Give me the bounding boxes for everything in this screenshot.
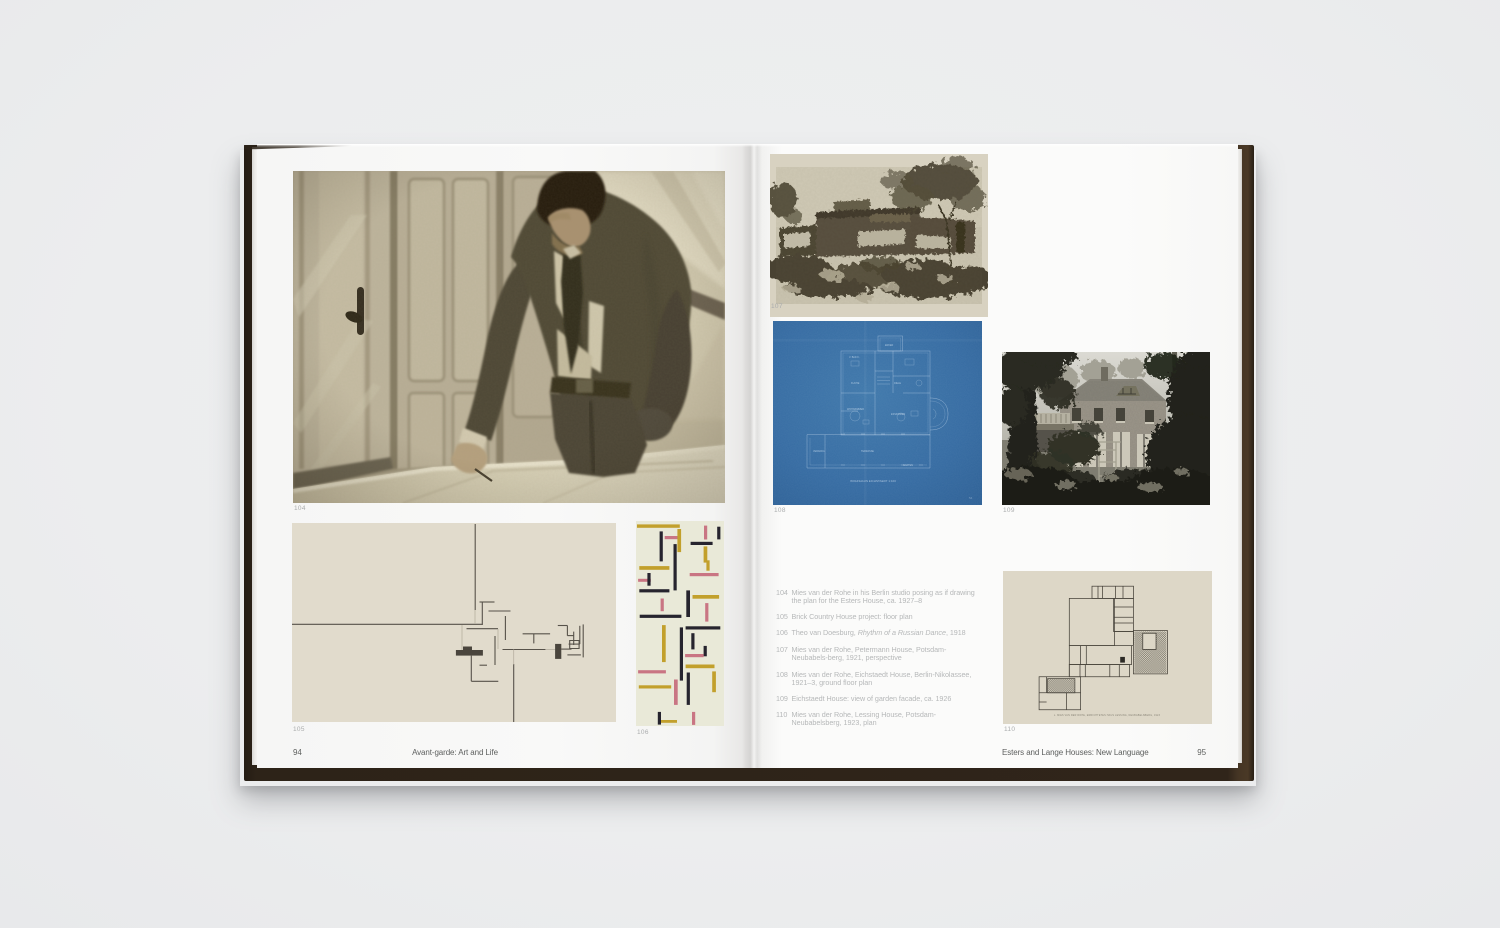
svg-text:WOHNHAUS EICHSTAEDT 1:100: WOHNHAUS EICHSTAEDT 1:100 [850,479,896,483]
svg-text:V. BAD K.: V. BAD K. [849,356,860,359]
svg-text:GARTEN: GARTEN [903,464,913,467]
svg-text:ERKER: ERKER [885,344,894,347]
svg-text:KUCHE: KUCHE [851,382,860,385]
svg-text:ESSZIMMER: ESSZIMMER [891,413,905,416]
svg-text:L. MIES VAN DER ROHE, ERRICHTE: L. MIES VAN DER ROHE, ERRICHTETES HAUS L… [1054,714,1161,717]
svg-text:VERANDA: VERANDA [813,450,825,453]
svg-text:DIELE: DIELE [894,382,901,385]
svg-text:54: 54 [969,496,973,500]
svg-text:TERRASSE: TERRASSE [861,450,874,453]
svg-text:WOHNZIMMER: WOHNZIMMER [847,408,864,411]
